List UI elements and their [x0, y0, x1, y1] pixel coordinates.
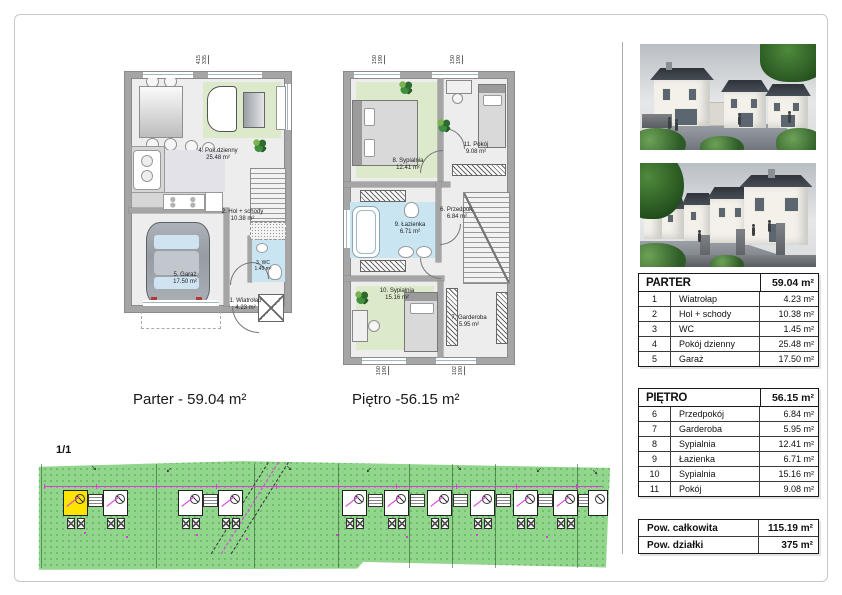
annotation-mark: [246, 538, 248, 540]
site-porch: [474, 518, 482, 529]
site-porch: [527, 518, 535, 529]
cell-area: 12.41 m²: [760, 437, 818, 451]
desk: [446, 80, 472, 94]
toilet: [404, 202, 419, 218]
person: [675, 122, 678, 131]
site-porch: [346, 518, 354, 529]
bed-headboard: [479, 85, 505, 93]
site-house: [178, 490, 203, 516]
dimension-label-pietro-bottom-1: 150 190: [376, 366, 389, 375]
site-house: [103, 490, 128, 516]
tv-cabinet: [243, 92, 265, 128]
room-label-hol: 2. Hol + schody 10.38 m²: [205, 209, 280, 223]
house-window: [730, 98, 738, 109]
stove: [163, 194, 205, 210]
cell-no: 5: [639, 352, 671, 366]
north-arrow: ↘: [91, 464, 97, 472]
site-garage-strip: [88, 494, 103, 507]
compass-icon: [595, 494, 605, 504]
site-porch: [232, 518, 240, 529]
site-garage-strip: [410, 494, 425, 507]
room-label-garaz: 5. Garaż 17.50 m²: [155, 272, 215, 286]
cell-area: 1.45 m²: [760, 322, 818, 336]
site-porch: [77, 518, 85, 529]
north-arrow: ↙: [166, 466, 172, 474]
room-name: 2. Hol + schody: [222, 209, 264, 215]
wc-basin: [256, 243, 268, 253]
table-total: 56.15 m²: [760, 389, 818, 406]
table-row: 11Pokój9.08 m²: [639, 482, 818, 496]
annotation-mark: [406, 536, 408, 538]
table-row: 4Pokój dzienny25.48 m²: [639, 337, 818, 352]
room-area: 1.45 m²: [255, 266, 272, 272]
site-garage-strip: [368, 494, 383, 507]
house-window: [718, 207, 726, 218]
dimension-value: 335: [202, 55, 209, 64]
site-house: [513, 490, 538, 516]
cell-area: 25.48 m²: [760, 337, 818, 351]
window: [432, 72, 478, 78]
site-porch: [107, 518, 115, 529]
rendered-house: [724, 92, 766, 128]
dimension-label-pietro-bottom-2: 102 190: [452, 366, 465, 375]
dimension-tick: [276, 484, 277, 489]
cell-area: 115.19 m²: [759, 520, 818, 536]
wall-segment: [344, 276, 444, 281]
cell-area: 9.08 m²: [760, 482, 818, 496]
north-arrow: ↘: [286, 464, 292, 472]
dimension-value: 190: [458, 366, 465, 375]
room-label-pokoj-dzienny: 4. Pok.dzienny 25.48 m²: [178, 148, 258, 162]
chimney: [768, 169, 775, 178]
cell-name: Sypialnia: [671, 467, 760, 481]
plot-boundary: [495, 464, 496, 568]
room-area: 10.38 m²: [231, 216, 255, 222]
annotation-mark: [476, 534, 478, 536]
dimension-tick: [156, 484, 157, 489]
room-name: 9. Łazienka: [395, 222, 426, 228]
washbasin: [416, 246, 432, 258]
radiator: [360, 260, 406, 272]
desk: [352, 310, 368, 342]
dimension-label-parter-top: 415 335: [196, 55, 209, 64]
person: [788, 114, 791, 123]
plot-boundary: [338, 464, 339, 568]
cell-area: 17.50 m²: [760, 352, 818, 366]
table-row: 10Sypialnia15.16 m²: [639, 467, 818, 482]
cell-no: 6: [639, 407, 671, 421]
room-name: 10. Sypialnia: [380, 288, 414, 294]
room-area: 17.50 m²: [173, 279, 197, 285]
cell-no: 2: [639, 307, 671, 321]
person: [738, 116, 741, 125]
parter-area-table: PARTER 59.04 m² 1Wiatrołap4.23 m² 2Hol +…: [638, 273, 819, 367]
dimension-tick: [456, 484, 457, 489]
pietro-area-table: PIĘTRO 56.15 m² 6Przedpokój6.84 m² 7Gard…: [638, 388, 819, 497]
dimension-tick: [96, 484, 97, 489]
table-row: 2Hol + schody10.38 m²: [639, 307, 818, 322]
cell-name: Pokój dzienny: [671, 337, 760, 351]
room-area: 6.71 m²: [400, 229, 420, 235]
house-window: [688, 88, 697, 101]
chair: [452, 93, 463, 104]
site-porch: [117, 518, 125, 529]
room-label-lazienka: 9. Łazienka 6.71 m²: [380, 222, 440, 236]
plot-boundary: [577, 464, 578, 568]
house-window: [784, 197, 799, 212]
table-row: 3WC1.45 m²: [639, 322, 818, 337]
dimension-label-pietro-top-2: 150 190: [450, 55, 463, 64]
site-house-highlighted: [63, 490, 88, 516]
site-house: [218, 490, 243, 516]
cell-name: Garaż: [671, 352, 760, 366]
table-row: 9Łazienka6.71 m²: [639, 452, 818, 467]
cell-area: 15.16 m²: [760, 467, 818, 481]
radiator: [360, 190, 406, 202]
site-garage-strip: [496, 494, 511, 507]
room-name: 8. Sypialnia: [392, 158, 423, 164]
house-window: [754, 197, 765, 212]
room-label-wiatrolap: 1. Wiatrołap 4.23 m²: [213, 298, 278, 312]
site-porch: [388, 518, 396, 529]
person: [668, 120, 671, 129]
dimension-value: 190: [378, 55, 385, 64]
cell-no: 4: [639, 337, 671, 351]
house-window: [792, 102, 800, 112]
room-area: 15.16 m²: [385, 295, 409, 301]
garage-door: [143, 300, 219, 306]
cell-no: 7: [639, 422, 671, 436]
dimension-tick: [216, 484, 217, 489]
dimension-label-pietro-top-1: 150 190: [372, 55, 385, 64]
site-porch: [484, 518, 492, 529]
site-house: [427, 490, 452, 516]
plot-boundary: [452, 464, 453, 568]
room-label-garderoba: 7. Garderoba 5.95 m²: [438, 315, 500, 329]
under-stairs-storage: [250, 222, 286, 240]
site-porch: [567, 518, 575, 529]
site-porch: [67, 518, 75, 529]
dimension-value: 190: [382, 366, 389, 375]
room-area: 9.08 m²: [466, 149, 486, 155]
table-row: 5Garaż17.50 m²: [639, 352, 818, 366]
summary-row: Pow. całkowita115.19 m²: [639, 520, 818, 537]
site-house: [384, 490, 409, 516]
cell-name: Sypialnia: [671, 437, 760, 451]
site-porch: [192, 518, 200, 529]
chimney: [666, 62, 672, 70]
cell-name: Pokój: [671, 482, 760, 496]
cell-name: Hol + schody: [671, 307, 760, 321]
cell-name: Łazienka: [671, 452, 760, 466]
pietro-caption: Piętro -56.15 m²: [352, 391, 460, 408]
plot-boundary: [41, 464, 42, 568]
table-header: PIĘTRO 56.15 m²: [639, 389, 818, 407]
dimension-tick: [338, 484, 339, 489]
window: [208, 72, 262, 78]
house-window: [773, 102, 781, 112]
cell-no: 3: [639, 322, 671, 336]
sofa: [207, 86, 237, 132]
room-name: 4. Pok.dzienny: [198, 148, 237, 154]
site-porch: [222, 518, 230, 529]
house-window: [750, 98, 758, 109]
bed-pillow: [483, 95, 502, 106]
room-name: 11. Pokój: [464, 142, 489, 148]
cell-no: 8: [639, 437, 671, 451]
cell-name: Wiatrołap: [671, 292, 760, 306]
site-porch: [356, 518, 364, 529]
car: [146, 222, 210, 306]
table-row: 6Przedpokój6.84 m²: [639, 407, 818, 422]
site-porch: [557, 518, 565, 529]
plant-icon: [398, 80, 413, 95]
room-area: 25.48 m²: [206, 155, 230, 161]
room-label-wc: 3. WC 1.45 m²: [241, 260, 285, 272]
person: [768, 223, 771, 232]
room-name: 6. Przedpok.: [440, 207, 474, 213]
room-label-pokoj11: 11. Pokój 9.08 m²: [448, 142, 504, 156]
column-divider: [622, 42, 623, 554]
cell-area: 5.95 m²: [760, 422, 818, 436]
wall-unit: [276, 86, 286, 130]
person: [752, 227, 755, 236]
cell-area: 4.23 m²: [760, 292, 818, 306]
plot-boundary: [156, 464, 157, 568]
bed: [352, 100, 418, 166]
washbasin: [398, 246, 414, 258]
room-label-sypialnia8: 8. Sypialnia 12.41 m²: [378, 158, 438, 172]
window: [143, 72, 193, 78]
annotation-mark: [84, 532, 86, 534]
room-area: 5.95 m²: [459, 322, 479, 328]
bush: [710, 255, 744, 267]
house-window: [734, 207, 742, 218]
dimension-line: [44, 486, 602, 487]
bed-headboard: [353, 101, 362, 165]
annotation-mark: [126, 536, 128, 538]
cell-area: 6.71 m²: [760, 452, 818, 466]
bed-pillow: [364, 108, 375, 126]
room-area: 4.23 m²: [235, 305, 255, 311]
dimension-value: 190: [456, 55, 463, 64]
window: [344, 210, 350, 248]
north-arrow: ↘: [592, 468, 598, 476]
annotation-mark: [196, 534, 198, 536]
exterior-render-1: [640, 44, 816, 150]
table-row: 7Garderoba5.95 m²: [639, 422, 818, 437]
chair: [368, 320, 380, 332]
plot-boundary: [409, 464, 410, 568]
plant-icon: [436, 118, 451, 133]
window: [362, 358, 406, 364]
north-arrow: ↙: [536, 466, 542, 474]
parter-caption: Parter - 59.04 m²: [133, 391, 246, 408]
table-row: 1Wiatrołap4.23 m²: [639, 292, 818, 307]
bed: [478, 84, 506, 148]
cell-no: 10: [639, 467, 671, 481]
tree: [760, 44, 816, 82]
dimension-tick: [44, 484, 45, 489]
cell-no: 1: [639, 292, 671, 306]
annotation-mark: [336, 534, 338, 536]
sheet-number: 1/1: [56, 444, 71, 456]
site-porch: [441, 518, 449, 529]
room-label-przedpokoj: 6. Przedpok. 6.84 m²: [428, 207, 486, 221]
bed-pillow: [410, 303, 434, 314]
car-windshield: [154, 235, 199, 249]
exterior-render-2: [640, 163, 816, 267]
house-window: [662, 88, 671, 101]
table-title: PARTER: [639, 274, 760, 291]
bed-pillow: [364, 139, 375, 157]
site-house: [342, 490, 367, 516]
site-plan-area: [36, 460, 610, 572]
driveway-outline: [141, 306, 221, 329]
site-porch: [431, 518, 439, 529]
window: [436, 358, 476, 364]
bathtub: [352, 206, 380, 258]
summary-table: Pow. całkowita115.19 m² Pow. działki375 …: [638, 519, 819, 554]
site-porch: [398, 518, 406, 529]
cell-no: 9: [639, 452, 671, 466]
person: [698, 233, 701, 242]
wall-segment: [344, 182, 450, 187]
cell-area: 6.84 m²: [760, 407, 818, 421]
cell-no: 11: [639, 482, 671, 496]
cell-name: Pow. działki: [639, 537, 759, 553]
cell-name: Przedpokój: [671, 407, 760, 421]
room-name: 7. Garderoba: [451, 315, 486, 321]
bush: [776, 128, 816, 150]
dimension-tick: [396, 484, 397, 489]
cell-area: 375 m²: [759, 537, 818, 553]
site-house: [588, 490, 608, 516]
kitchen-sink: [133, 150, 161, 190]
dimension-tick: [516, 484, 517, 489]
annotation-mark: [546, 536, 548, 538]
site-garage-strip: [453, 494, 468, 507]
house-window: [690, 211, 697, 221]
site-plan: 1/1 ↘ ↙ ↘ ↙ ↘ ↙ ↘: [36, 444, 612, 576]
site-porch: [517, 518, 525, 529]
table-row: 8Sypialnia12.41 m²: [639, 437, 818, 452]
site-house: [553, 490, 578, 516]
dimension-tick: [576, 484, 577, 489]
room-label-sypialnia10: 10. Sypialnia 15.16 m²: [362, 288, 432, 302]
cell-name: Garderoba: [671, 422, 760, 436]
table-total: 59.04 m²: [760, 274, 818, 291]
room-area: 6.84 m²: [447, 214, 467, 220]
table-header: PARTER 59.04 m²: [639, 274, 818, 292]
stairs: [463, 192, 510, 284]
dining-table: [139, 86, 183, 138]
cell-name: WC: [671, 322, 760, 336]
site-house: [470, 490, 495, 516]
summary-row: Pow. działki375 m²: [639, 537, 818, 553]
north-arrow: ↘: [456, 464, 462, 472]
cell-name: Pow. całkowita: [639, 520, 759, 536]
site-garage-strip: [538, 494, 553, 507]
site-garage-strip: [203, 494, 218, 507]
table-title: PIĘTRO: [639, 389, 760, 406]
room-name: 5. Garaż: [173, 272, 196, 278]
radiator: [452, 164, 506, 176]
window: [354, 72, 400, 78]
cell-area: 10.38 m²: [760, 307, 818, 321]
north-arrow: ↙: [366, 466, 372, 474]
room-area: 12.41 m²: [396, 165, 420, 171]
site-porch: [182, 518, 190, 529]
room-name: 1. Wiatrołap: [229, 298, 261, 304]
